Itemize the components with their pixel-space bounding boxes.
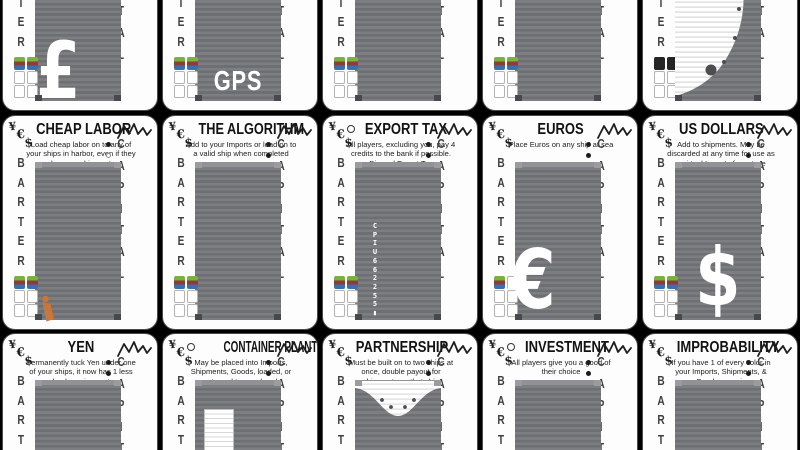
cost-container-cell [494, 57, 505, 70]
container-corner-fitting [594, 162, 601, 168]
container-corner-fitting [515, 314, 522, 320]
barter-letter: R [656, 254, 665, 267]
yes-currency-icon: ¥€$ [7, 119, 39, 158]
barter-letter: B [496, 374, 505, 387]
card-investment[interactable]: INVESTMENTAll players give you a good of… [482, 333, 638, 450]
cost-stack [654, 276, 665, 320]
worker-figure-graphic [40, 294, 56, 322]
cost-stack [494, 57, 505, 101]
barter-letter: E [496, 234, 505, 247]
shipping-container-graphic [35, 380, 121, 450]
container-corner-fitting [594, 314, 601, 320]
barter-letter: E [656, 234, 665, 247]
cost-container-cell [334, 85, 345, 98]
cost-stack [174, 57, 185, 101]
container-corner-fitting [434, 162, 441, 168]
shipping-container-graphic [355, 0, 441, 101]
cost-container-cell [14, 85, 25, 98]
container-corner-fitting [114, 95, 121, 101]
cost-container-cell [667, 290, 678, 303]
cost-stack [14, 57, 25, 101]
currency-glyph: $ [664, 136, 674, 149]
barter-letter: R [496, 413, 505, 426]
card-pound-card[interactable]: ¥€$BARTERCAPITAL£ [2, 0, 158, 111]
yes-currency-icon: ¥€$ [167, 119, 199, 158]
capital-value-dot [746, 371, 751, 376]
barter-letter: T [16, 0, 25, 9]
capital-letter: C [116, 355, 125, 368]
euro-symbol-graphic: € [509, 240, 556, 322]
cost-stack [494, 276, 505, 320]
cost-container-cell [334, 71, 345, 84]
card-us-dollars[interactable]: US DOLLARSAdd to shipments. May be disca… [642, 115, 798, 330]
barter-letter: A [336, 176, 345, 189]
barter-letter: A [176, 394, 185, 407]
barter-letter: A [656, 394, 665, 407]
cost-stack [334, 276, 345, 320]
cost-container-cell [187, 276, 198, 289]
barter-letter: R [496, 254, 505, 267]
cost-container-cell [27, 290, 38, 303]
container-corner-fitting [515, 162, 522, 168]
barter-letter: T [16, 215, 25, 228]
barter-letter: R [16, 35, 25, 48]
barter-letter: R [176, 413, 185, 426]
capital-letter: C [436, 137, 445, 150]
barter-letter: T [496, 0, 505, 9]
capital-value-dot [266, 153, 271, 158]
container-corner-fitting [754, 380, 761, 386]
currency-glyph: $ [664, 354, 674, 367]
cost-container-cell [334, 304, 345, 317]
cost-container-cell [494, 85, 505, 98]
cost-container-cell [654, 304, 665, 317]
barter-letter: R [496, 195, 505, 208]
card-plain-card-1[interactable]: ¥€$BARTERCAPITAL [322, 0, 478, 111]
card-curve-card[interactable]: ¥€$BARTERCAPITAL [642, 0, 798, 111]
barter-letter: A [16, 176, 25, 189]
pound-symbol-graphic: £ [36, 33, 81, 111]
container-corner-fitting [274, 95, 281, 101]
yes-currency-icon: ¥€$ [647, 337, 679, 376]
barter-letter: B [656, 156, 665, 169]
container-corner-fitting [274, 380, 281, 386]
barter-letter: T [176, 433, 185, 446]
cost-container-cell [347, 57, 358, 70]
currency-glyph: $ [344, 354, 354, 367]
cost-stack [174, 276, 185, 320]
capital-value-dot [106, 142, 111, 147]
cost-container-cell [654, 57, 665, 70]
container-corner-fitting [434, 380, 441, 386]
barter-letter: E [336, 15, 345, 28]
container-corner-fitting [675, 380, 682, 386]
cost-container-cell [27, 276, 38, 289]
container-corner-fitting [274, 314, 281, 320]
card-export-tax[interactable]: EXPORT TAXAll players, excluding you, pa… [322, 115, 478, 330]
capital-value-dot [266, 371, 271, 376]
barter-letter: T [496, 215, 505, 228]
barter-letter: R [336, 413, 345, 426]
card-euros[interactable]: EUROSPlace Euros on any ship at sea¥€$BA… [482, 115, 638, 330]
shipping-container-graphic [195, 162, 281, 320]
barter-letter: E [176, 15, 185, 28]
shipping-container-graphic [355, 162, 441, 320]
yes-currency-icon: ¥€$ [327, 337, 359, 376]
cost-container-cell [334, 276, 345, 289]
barter-letter: R [16, 254, 25, 267]
barter-letter: R [656, 195, 665, 208]
capital-letter: C [276, 137, 285, 150]
cost-container-cell [654, 85, 665, 98]
cost-container-cell [347, 276, 358, 289]
capital-value-dot [586, 142, 591, 147]
shipping-container-graphic [515, 380, 601, 450]
currency-glyph: $ [24, 354, 34, 367]
card-the-algorithm[interactable]: THE ALGORITHMAdd to your Imports or load… [162, 115, 318, 330]
card-sheet: ¥€$BARTERCAPITAL£¥€$BARTERCAPITALGPS¥€$B… [0, 0, 800, 450]
container-corner-fitting [355, 162, 362, 168]
capital-value-dot [746, 360, 751, 365]
barter-letter: A [176, 176, 185, 189]
barter-letter: E [16, 234, 25, 247]
card-partnership[interactable]: PARTNERSHIPMust be built on to two ships… [322, 333, 478, 450]
shipping-container-graphic [515, 0, 601, 101]
barter-letter: E [176, 234, 185, 247]
container-corner-fitting [675, 95, 682, 101]
card-plain-card-2[interactable]: ¥€$BARTERCAPITAL [482, 0, 638, 111]
currency-glyph: $ [504, 136, 514, 149]
cost-container-cell [174, 85, 185, 98]
barter-letter: B [336, 156, 345, 169]
barter-letter: A [16, 394, 25, 407]
cost-container-cell [347, 71, 358, 84]
container-corner-fitting [35, 162, 42, 168]
capital-letter: C [116, 137, 125, 150]
card-title-text: YEN [68, 339, 95, 357]
barter-letter: R [336, 195, 345, 208]
cost-container-cell [494, 304, 505, 317]
container-corner-fitting [355, 380, 362, 386]
container-corner-fitting [195, 162, 202, 168]
barter-letter: R [496, 35, 505, 48]
cost-container-cell [174, 57, 185, 70]
container-corner-fitting [355, 314, 362, 320]
cost-container-cell [174, 71, 185, 84]
capital-value-dot [106, 360, 111, 365]
capital-letter: C [596, 137, 605, 150]
currency-glyph: $ [184, 354, 194, 367]
yes-currency-icon: ¥€$ [327, 119, 359, 158]
capital-value-dot [426, 371, 431, 376]
barter-letter: R [336, 254, 345, 267]
barter-letter: B [656, 374, 665, 387]
barter-letter: B [176, 156, 185, 169]
cost-container-cell [187, 290, 198, 303]
capital-letter: C [756, 355, 765, 368]
barter-letter: T [656, 433, 665, 446]
card-title-text: US DOLLARS [679, 121, 764, 139]
barter-letter: B [16, 374, 25, 387]
partnership-net-graphic [355, 380, 441, 442]
card-gps-card[interactable]: ¥€$BARTERCAPITALGPS [162, 0, 318, 111]
gps-text-graphic: GPS [204, 67, 271, 95]
capital-value-dot [586, 371, 591, 376]
cost-container-cell [187, 57, 198, 70]
barter-letter: R [336, 35, 345, 48]
barter-letter: E [496, 15, 505, 28]
capital-value-dot [746, 142, 751, 147]
barter-letter: T [336, 0, 345, 9]
barter-letter: A [496, 176, 505, 189]
capital-value-dot [426, 142, 431, 147]
cost-container-cell [654, 276, 665, 289]
currency-glyph: $ [184, 136, 194, 149]
barter-letter: A [336, 394, 345, 407]
capital-value-dot [266, 142, 271, 147]
container-corner-fitting [594, 95, 601, 101]
capital-letter: C [436, 355, 445, 368]
barter-letter: R [656, 35, 665, 48]
barter-letter: T [656, 215, 665, 228]
container-corner-fitting [35, 95, 42, 101]
container-corner-fitting [195, 314, 202, 320]
barter-letter: T [656, 0, 665, 9]
barter-letter: T [336, 215, 345, 228]
cost-container-cell [494, 290, 505, 303]
container-corner-fitting [754, 162, 761, 168]
capital-value-dot [266, 360, 271, 365]
barter-letter: A [496, 394, 505, 407]
container-corner-fitting [274, 162, 281, 168]
barter-letter: T [176, 0, 185, 9]
container-corner-fitting [594, 380, 601, 386]
barter-letter: R [176, 195, 185, 208]
barter-letter: E [336, 234, 345, 247]
container-serial-graphic: C P I U 6 6 2 2 5 5 [370, 222, 380, 318]
cost-container-cell [174, 276, 185, 289]
container-corner-fitting [754, 314, 761, 320]
container-corner-fitting [114, 380, 121, 386]
cost-container-cell [14, 290, 25, 303]
card-yen[interactable]: YENPermanently tuck Yen under one of you… [2, 333, 158, 450]
capital-letter: C [756, 137, 765, 150]
cost-container-cell [334, 57, 345, 70]
cost-stack [14, 276, 25, 320]
container-corner-fitting [434, 314, 441, 320]
container-corner-fitting [114, 162, 121, 168]
container-corner-fitting [195, 95, 202, 101]
cost-container-cell [14, 304, 25, 317]
yes-currency-icon: ¥€$ [7, 337, 39, 376]
container-corner-fitting [195, 380, 202, 386]
capital-value-dot [106, 371, 111, 376]
capital-value-dot [586, 360, 591, 365]
cost-stack [334, 57, 345, 101]
capital-letter: C [276, 355, 285, 368]
barter-letter: R [16, 195, 25, 208]
capital-value-dot [426, 153, 431, 158]
container-corner-fitting [675, 314, 682, 320]
white-container-graphic [204, 409, 234, 450]
card-improbability[interactable]: IMPROBABILITYIf you have 1 of every colo… [642, 333, 798, 450]
cost-container-cell [667, 276, 678, 289]
card-container-plant[interactable]: CONTAINER PLANTMay be placed into Import… [162, 333, 318, 450]
capital-value-dot [106, 153, 111, 158]
capital-value-dot [426, 360, 431, 365]
barter-letter: R [656, 413, 665, 426]
barter-letter: A [656, 176, 665, 189]
barter-letter: B [336, 374, 345, 387]
cost-container-cell [494, 71, 505, 84]
currency-glyph: $ [24, 136, 34, 149]
barter-letter: B [16, 156, 25, 169]
cost-container-cell [654, 290, 665, 303]
shipping-container-graphic [675, 380, 761, 450]
barter-letter: R [176, 35, 185, 48]
container-corner-fitting [754, 95, 761, 101]
container-corner-fitting [35, 314, 42, 320]
barter-letter: E [656, 15, 665, 28]
yes-currency-icon: ¥€$ [487, 119, 519, 158]
capital-letter: C [596, 355, 605, 368]
barter-letter: R [176, 254, 185, 267]
barter-letter: T [496, 433, 505, 446]
barter-letter: E [16, 15, 25, 28]
cost-container-cell [187, 71, 198, 84]
container-corner-fitting [434, 95, 441, 101]
cost-stack [654, 57, 665, 101]
currency-glyph: $ [344, 136, 354, 149]
container-corner-fitting [675, 162, 682, 168]
card-title-text: PARTNERSHIP [356, 339, 448, 357]
cost-container-cell [14, 276, 25, 289]
dollar-symbol-graphic: $ [695, 238, 741, 318]
yes-currency-icon: ¥€$ [487, 337, 519, 376]
card-cheap-labor[interactable]: CHEAP LABORLoad cheap labor on to any of… [2, 115, 158, 330]
cost-container-cell [494, 276, 505, 289]
barter-letter: T [336, 433, 345, 446]
cost-container-cell [14, 71, 25, 84]
cost-container-cell [174, 290, 185, 303]
container-corner-fitting [515, 380, 522, 386]
container-corner-fitting [515, 95, 522, 101]
cost-container-cell [654, 71, 665, 84]
currency-glyph: $ [504, 354, 514, 367]
container-corner-fitting [114, 314, 121, 320]
card-title-text: EXPORT TAX [365, 121, 447, 139]
yes-currency-icon: ¥€$ [647, 119, 679, 158]
cost-container-cell [334, 290, 345, 303]
cost-container-cell [174, 304, 185, 317]
card-title-text: EUROS [538, 121, 584, 139]
cost-container-cell [347, 290, 358, 303]
barter-letter: R [16, 413, 25, 426]
barter-letter: T [16, 433, 25, 446]
cost-container-cell [507, 57, 518, 70]
barter-letter: T [176, 215, 185, 228]
barter-letter: B [496, 156, 505, 169]
cost-container-cell [507, 71, 518, 84]
cost-container-cell [14, 57, 25, 70]
container-corner-fitting [35, 380, 42, 386]
container-corner-fitting [355, 95, 362, 101]
capital-value-dot [746, 153, 751, 158]
distribution-curve-graphic [675, 0, 761, 101]
capital-value-dot [586, 153, 591, 158]
barter-letter: B [176, 374, 185, 387]
yes-currency-icon: ¥€$ [167, 337, 199, 376]
